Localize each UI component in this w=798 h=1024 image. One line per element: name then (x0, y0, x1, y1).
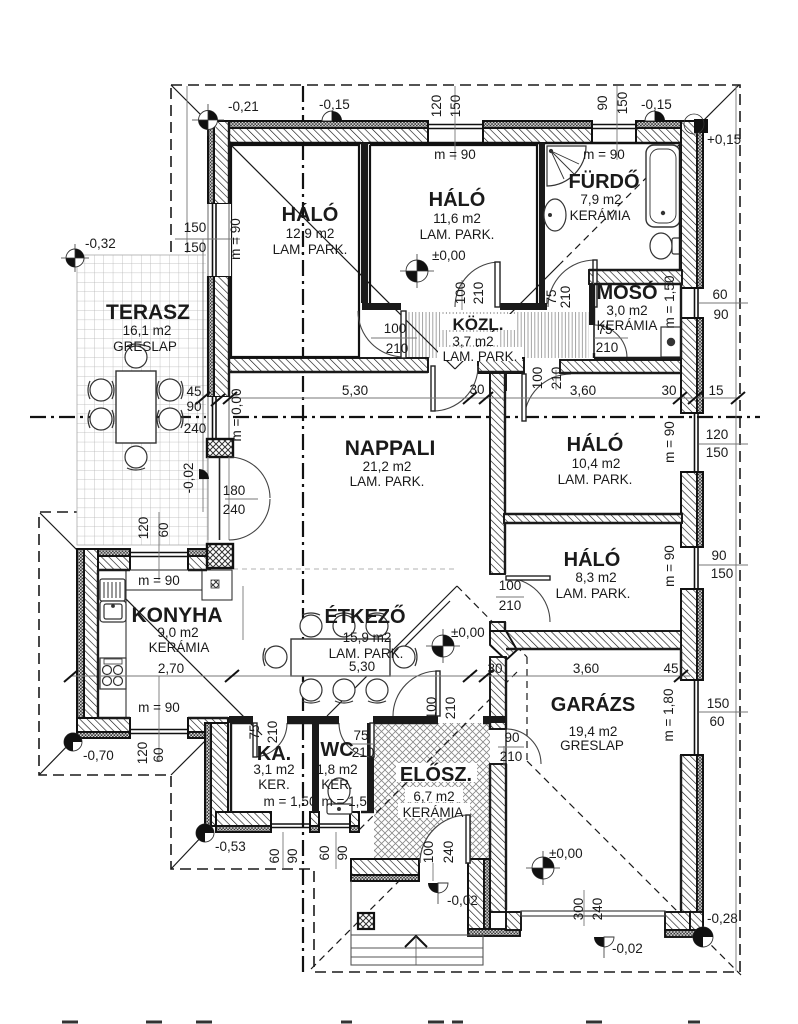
svg-text:ELŐSZ.: ELŐSZ. (400, 763, 472, 786)
svg-text:45: 45 (186, 384, 201, 399)
svg-text:-0,70: -0,70 (83, 748, 114, 763)
svg-text:150: 150 (448, 95, 463, 118)
svg-text:15,9 m2: 15,9 m2 (343, 630, 392, 645)
svg-text:KONYHA: KONYHA (131, 604, 222, 627)
svg-text:KERÁMIA: KERÁMIA (149, 640, 210, 655)
svg-text:KER.: KER. (321, 777, 353, 792)
svg-text:6,7 m2: 6,7 m2 (413, 789, 454, 804)
svg-text:150: 150 (184, 220, 207, 235)
svg-text:LAM. PARK.: LAM. PARK. (420, 227, 495, 242)
svg-text:12,9 m2: 12,9 m2 (286, 226, 335, 241)
svg-text:7,9 m2: 7,9 m2 (580, 192, 621, 207)
svg-text:FÜRDŐ: FÜRDŐ (568, 170, 639, 193)
svg-text:180: 180 (223, 483, 246, 498)
svg-text:MOSÓ: MOSÓ (596, 280, 657, 304)
svg-text:-0,53: -0,53 (215, 839, 246, 854)
svg-text:m = 90: m = 90 (434, 147, 476, 162)
svg-text:m = 1,50: m = 1,50 (662, 276, 677, 329)
svg-text:75: 75 (247, 724, 262, 739)
svg-text:150: 150 (707, 696, 730, 711)
svg-text:LAM. PARK.: LAM. PARK. (273, 242, 348, 257)
svg-text:m = 1,50: m = 1,50 (264, 794, 317, 809)
svg-text:LAM. PARK.: LAM. PARK. (556, 586, 631, 601)
svg-text:15: 15 (708, 383, 723, 398)
svg-text:m = 0,00: m = 0,00 (229, 389, 244, 442)
svg-text:WC: WC (320, 739, 353, 761)
svg-text:m = 90: m = 90 (138, 700, 180, 715)
svg-text:210: 210 (558, 286, 573, 309)
svg-text:60: 60 (317, 845, 332, 860)
svg-text:m = 1,50: m = 1,50 (322, 794, 375, 809)
svg-text:90: 90 (285, 848, 300, 863)
svg-text:11,6 m2: 11,6 m2 (433, 211, 481, 226)
svg-text:210: 210 (386, 341, 409, 356)
svg-text:30: 30 (487, 661, 502, 676)
svg-text:90: 90 (711, 548, 726, 563)
svg-text:LAM. PARK.: LAM. PARK. (443, 349, 518, 364)
svg-text:30: 30 (469, 382, 484, 397)
svg-text:100: 100 (453, 282, 468, 305)
svg-text:75: 75 (597, 322, 612, 337)
svg-text:60: 60 (151, 747, 166, 762)
svg-text:m = 90: m = 90 (662, 421, 677, 463)
svg-text:m = 90: m = 90 (228, 218, 243, 260)
svg-text:9,0 m2: 9,0 m2 (157, 625, 198, 640)
svg-text:60: 60 (267, 848, 282, 863)
svg-text:210: 210 (596, 340, 619, 355)
svg-text:75: 75 (353, 728, 368, 743)
svg-text:LAM. PARK.: LAM. PARK. (558, 472, 633, 487)
svg-text:-0,28: -0,28 (707, 911, 738, 926)
svg-text:240: 240 (590, 898, 605, 921)
svg-text:60: 60 (712, 287, 727, 302)
svg-text:120: 120 (706, 427, 729, 442)
svg-text:+0,15: +0,15 (707, 132, 741, 147)
svg-text:210: 210 (265, 721, 280, 744)
svg-text:-0,02: -0,02 (181, 463, 196, 494)
svg-text:HÁLÓ: HÁLÓ (429, 187, 486, 211)
svg-text:240: 240 (441, 841, 456, 864)
svg-text:KÖZL.: KÖZL. (453, 315, 504, 334)
svg-text:100: 100 (424, 697, 439, 720)
svg-text:240: 240 (223, 502, 246, 517)
svg-text:m = 90: m = 90 (583, 147, 625, 162)
svg-text:KER.: KER. (258, 777, 290, 792)
svg-text:90: 90 (713, 307, 728, 322)
svg-text:75: 75 (544, 289, 559, 304)
svg-text:5,30: 5,30 (342, 383, 368, 398)
svg-text:TERASZ: TERASZ (106, 301, 190, 324)
svg-text:90: 90 (186, 399, 201, 414)
svg-text:-0,21: -0,21 (228, 99, 259, 114)
svg-text:m = 90: m = 90 (138, 573, 180, 588)
svg-text:m = 90: m = 90 (662, 545, 677, 587)
svg-text:-0,15: -0,15 (641, 97, 672, 112)
svg-text:GARÁZS: GARÁZS (551, 693, 635, 716)
svg-text:8,3 m2: 8,3 m2 (575, 570, 616, 585)
svg-text:210: 210 (471, 282, 486, 305)
svg-text:LAM. PARK.: LAM. PARK. (350, 474, 425, 489)
svg-text:m = 1,80: m = 1,80 (661, 689, 676, 742)
svg-text:HÁLÓ: HÁLÓ (282, 202, 339, 226)
svg-text:-0,32: -0,32 (85, 236, 116, 251)
svg-text:210: 210 (499, 598, 522, 613)
svg-text:-0,02: -0,02 (447, 893, 478, 908)
svg-text:120: 120 (136, 517, 151, 540)
svg-text:-0,02: -0,02 (612, 941, 643, 956)
svg-text:210: 210 (500, 749, 523, 764)
svg-text:±0,00: ±0,00 (451, 625, 485, 640)
svg-text:3,60: 3,60 (573, 661, 599, 676)
svg-text:3,60: 3,60 (570, 383, 596, 398)
svg-text:100: 100 (421, 841, 436, 864)
svg-text:KERÁMIA: KERÁMIA (403, 805, 464, 820)
svg-text:-0,15: -0,15 (319, 97, 350, 112)
svg-text:±0,00: ±0,00 (549, 846, 583, 861)
svg-text:45: 45 (663, 661, 678, 676)
svg-text:300: 300 (571, 898, 586, 921)
svg-text:120: 120 (135, 742, 150, 765)
svg-text:150: 150 (711, 566, 734, 581)
svg-text:100: 100 (384, 321, 407, 336)
svg-text:150: 150 (706, 445, 729, 460)
svg-text:19,4 m2: 19,4 m2 (569, 724, 618, 739)
svg-text:100: 100 (530, 367, 545, 390)
svg-text:2,70: 2,70 (158, 661, 184, 676)
svg-text:210: 210 (443, 697, 458, 720)
svg-text:KERÁMIA: KERÁMIA (570, 208, 631, 223)
svg-text:ÉTKEZŐ: ÉTKEZŐ (324, 605, 405, 628)
svg-text:HÁLÓ: HÁLÓ (567, 432, 624, 456)
svg-text:100: 100 (499, 578, 522, 593)
svg-text:10,4 m2: 10,4 m2 (572, 456, 621, 471)
svg-text:90: 90 (335, 845, 350, 860)
svg-text:3,0 m2: 3,0 m2 (606, 303, 647, 318)
svg-text:150: 150 (184, 240, 207, 255)
svg-text:60: 60 (156, 522, 171, 537)
svg-text:5,30: 5,30 (349, 659, 375, 674)
svg-text:GRESLAP: GRESLAP (113, 339, 177, 354)
svg-text:GRESLAP: GRESLAP (560, 738, 624, 753)
svg-text:90: 90 (504, 730, 519, 745)
svg-text:150: 150 (615, 92, 630, 115)
svg-text:±0,00: ±0,00 (432, 248, 466, 263)
svg-text:HÁLÓ: HÁLÓ (564, 547, 621, 571)
svg-text:3,7 m2: 3,7 m2 (452, 334, 493, 349)
svg-text:3,1 m2: 3,1 m2 (253, 762, 294, 777)
svg-text:30: 30 (661, 383, 676, 398)
svg-text:210: 210 (352, 745, 375, 760)
svg-text:240: 240 (184, 421, 207, 436)
svg-text:21,2 m2: 21,2 m2 (363, 459, 412, 474)
svg-text:1,8 m2: 1,8 m2 (316, 762, 357, 777)
svg-text:120: 120 (429, 95, 444, 118)
svg-text:210: 210 (549, 367, 564, 390)
svg-text:60: 60 (709, 714, 724, 729)
svg-text:90: 90 (595, 95, 610, 110)
svg-text:16,1 m2: 16,1 m2 (123, 323, 172, 338)
svg-text:NAPPALI: NAPPALI (345, 437, 436, 460)
